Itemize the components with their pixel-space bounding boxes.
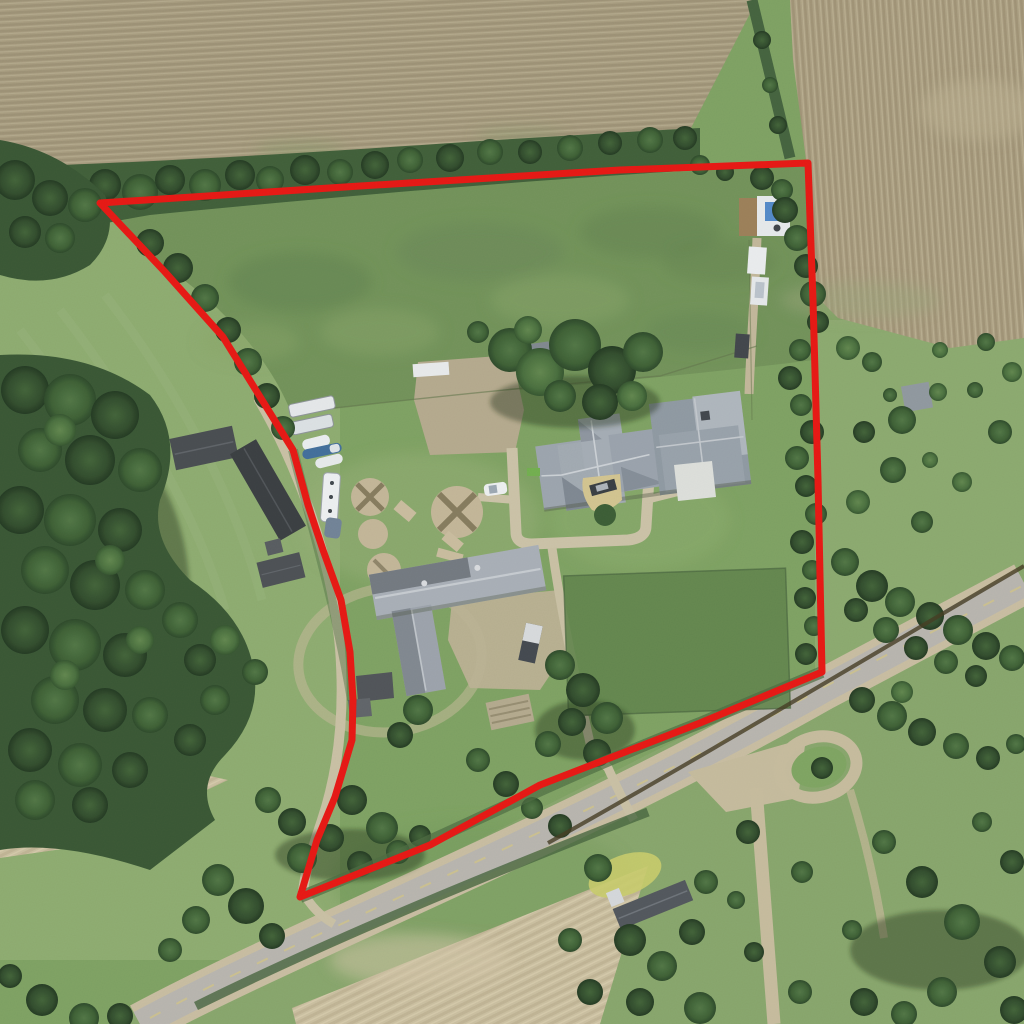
satellite-map-canvas[interactable]	[0, 0, 1024, 1024]
white-trailer-north	[413, 362, 450, 377]
shrub	[594, 504, 616, 526]
loop-island-bush	[811, 757, 833, 779]
trampoline	[527, 468, 540, 476]
boat-4	[324, 517, 343, 539]
ne-trailer	[747, 246, 767, 274]
rv	[320, 472, 340, 522]
barn-lean-to	[356, 672, 394, 702]
ne-dark-truck	[734, 334, 750, 359]
satellite-map-viewport[interactable]	[0, 0, 1024, 1024]
concrete-pad	[674, 461, 716, 501]
